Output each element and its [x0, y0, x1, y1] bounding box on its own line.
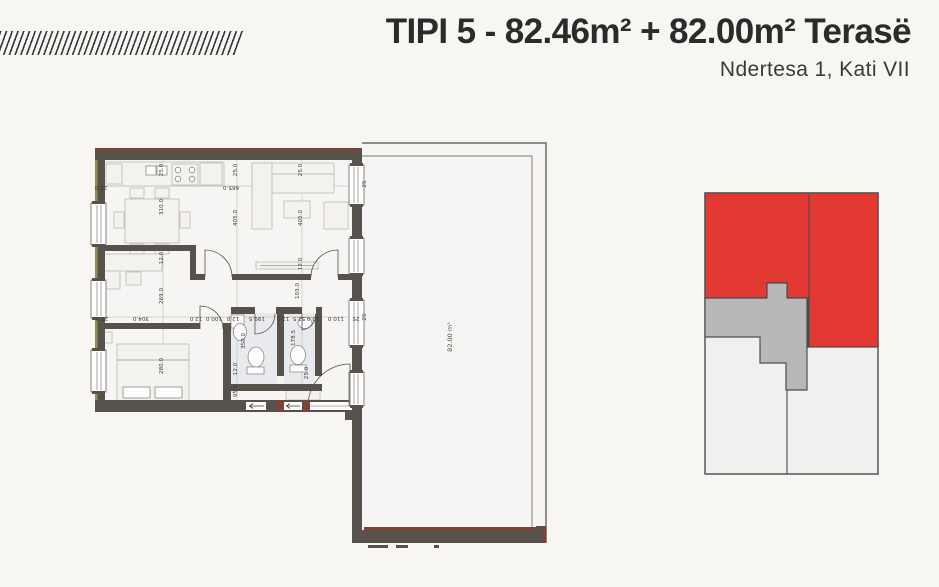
dimension-label: 100.0 — [206, 315, 222, 321]
dimension-label: 25 — [352, 315, 360, 321]
wall-stub — [345, 412, 353, 420]
dimension-label: 405.0 — [233, 210, 239, 226]
dimension-label: 178.5 — [291, 330, 297, 346]
dimension-label: 25.0 — [94, 184, 107, 190]
dimension-label: 405.0 — [298, 210, 304, 226]
dimension-label: 665.0 — [223, 184, 239, 190]
dimension-label: 25 — [362, 180, 368, 188]
dimension-label: 12.0 — [298, 257, 304, 270]
dimension-label: 280.0 — [159, 358, 165, 374]
key-plan — [703, 192, 880, 476]
dimension-label: 52.5 — [292, 315, 305, 321]
dimension-label: 12.0 — [226, 315, 239, 321]
window-right-2 — [349, 236, 364, 276]
dimension-label: 12.0 — [276, 315, 289, 321]
terrace-area — [362, 143, 546, 531]
dimension-label: 12.0 — [306, 315, 319, 321]
terrace-area-label: 82.00 m² — [446, 322, 454, 352]
window-left-3 — [91, 348, 106, 394]
dimension-label: 95.0 — [233, 384, 239, 397]
dimension-label: 25.0 — [298, 163, 304, 176]
terrace-brick-stripe — [364, 527, 540, 531]
dimension-label: 110.0 — [328, 315, 344, 321]
dimension-label: 310.0 — [159, 199, 165, 215]
dimension-label: 25.0 — [159, 163, 165, 176]
dimension-label: 25 — [362, 313, 368, 321]
dimension-label: 12.0 — [159, 251, 165, 264]
wall-top-brick-stripe — [95, 148, 362, 151]
dimension-label: 25.0 — [304, 366, 310, 379]
dimension-label: 25.0 — [233, 163, 239, 176]
dimension-label: 199.5 — [249, 315, 265, 321]
dimension-label: 12.0 — [189, 315, 202, 321]
dimension-label: 304.0 — [133, 315, 149, 321]
dimension-label: 12.0 — [233, 362, 239, 375]
dimension-label: 269.0 — [159, 288, 165, 304]
door-jamb — [303, 400, 310, 412]
window-left-1 — [91, 201, 106, 247]
dimension-label: 103.0 — [295, 283, 301, 299]
window-right-4 — [349, 370, 364, 408]
window-left-2 — [91, 278, 106, 320]
terrace-left-wall — [352, 412, 362, 543]
dimension-label: 350.0 — [241, 333, 247, 349]
page-background: TIPI 5 - 82.46m² + 82.00m² Terasë Nderte… — [0, 0, 939, 587]
terrace-bottom-wall — [362, 530, 546, 543]
window-right-3 — [349, 298, 364, 348]
dimension-label: 25.0 — [95, 315, 108, 321]
door-jamb — [277, 400, 284, 412]
